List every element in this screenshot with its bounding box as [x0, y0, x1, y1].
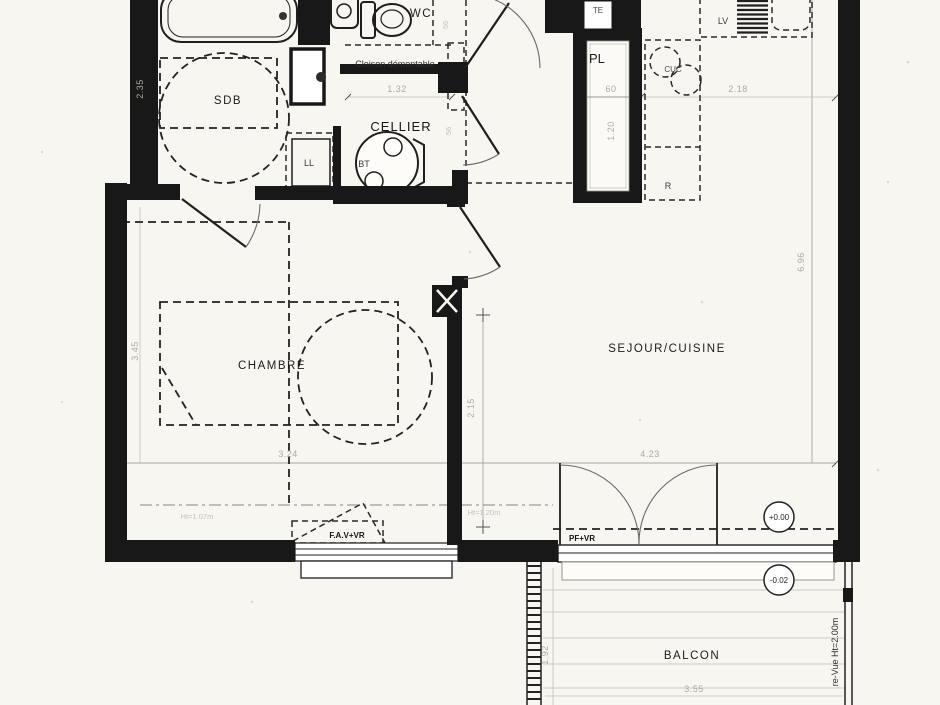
room-label-placard: PL: [589, 51, 605, 66]
wall-segment: [613, 0, 641, 32]
wall-segment: [105, 540, 295, 562]
label-cooktop: CUC: [664, 65, 682, 74]
label-electrical-panel: TE: [593, 6, 603, 15]
wall-segment: [333, 191, 468, 204]
dim-placard-largeur: 60: [605, 84, 616, 94]
room-label-wc: WC: [410, 8, 432, 20]
wall-segment: [458, 540, 558, 562]
wall-segment: [447, 317, 462, 545]
annotation-cloison: Cloison démontable: [355, 59, 435, 69]
wall-segment: [298, 0, 330, 45]
wall-segment: [838, 0, 860, 562]
railing-post: [843, 588, 853, 602]
chambre-window-sill: [301, 561, 452, 578]
level-value-balcony: -0.02: [770, 576, 789, 585]
dim-passage: 2.15: [466, 398, 476, 418]
chambre-window: [295, 543, 458, 561]
dim-placard-profondeur: 1.20: [606, 121, 616, 141]
room-label-sejour-cuisine: SEJOUR/CUISINE: [608, 343, 726, 355]
wall-segment: [573, 191, 642, 203]
dim-sejour-longueur: 6.96: [796, 252, 806, 272]
dim-chambre-longueur: 3.45: [130, 341, 140, 361]
annotation-french-door: PF+VR: [569, 534, 595, 543]
room-label-sdb: SDB: [214, 95, 242, 107]
label-fridge: R: [665, 181, 672, 191]
dim-cellier: 1.32: [387, 84, 407, 94]
dim-cuisine: 2.18: [728, 84, 748, 94]
label-washing-machine: LL: [304, 158, 314, 168]
label-water-heater: BT: [358, 159, 370, 169]
wall-segment: [105, 184, 180, 200]
wall-segment: [105, 183, 127, 562]
wall-segment: [333, 126, 341, 194]
dim-balcon-largeur: 3.55: [684, 684, 704, 694]
dim-cote-wc: 56: [441, 21, 450, 29]
level-value-interior: +0.00: [769, 513, 790, 522]
floor-plan-page: +0.00 -0.02 SDB WC CELLIER CHAMBRE SEJOU…: [0, 0, 940, 705]
floor-plan-drawing: +0.00 -0.02 SDB WC CELLIER CHAMBRE SEJOU…: [0, 0, 940, 705]
room-label-cellier: CELLIER: [370, 119, 431, 134]
annotation-pare-vue: re-Vue Ht=2.00m: [830, 618, 840, 686]
annotation-allege-sejour: Ht=1.20m: [468, 508, 501, 517]
room-label-chambre: CHAMBRE: [238, 360, 306, 372]
annotation-window: F.A.V+VR: [329, 531, 365, 540]
wall-segment: [438, 62, 468, 93]
dim-sejour-largeur: 4.23: [640, 449, 660, 459]
label-dishwasher: LV: [718, 16, 728, 26]
wall-segment: [629, 36, 642, 203]
annotation-allege-chambre: Ht=1.07m: [181, 512, 214, 521]
electrical-panel-box: [583, 0, 613, 30]
bathtub-drain-icon: [279, 12, 287, 20]
dim-cote-cellier: 56: [444, 127, 453, 135]
dim-chambre-largeur: 3.24: [278, 449, 298, 459]
wall-segment: [573, 28, 587, 203]
washbasin-tap-icon: [316, 72, 326, 82]
room-label-balcon: BALCON: [664, 650, 720, 662]
dim-sdb: 2.35: [135, 79, 145, 99]
dim-balcon-profondeur: 1.92: [540, 645, 550, 665]
